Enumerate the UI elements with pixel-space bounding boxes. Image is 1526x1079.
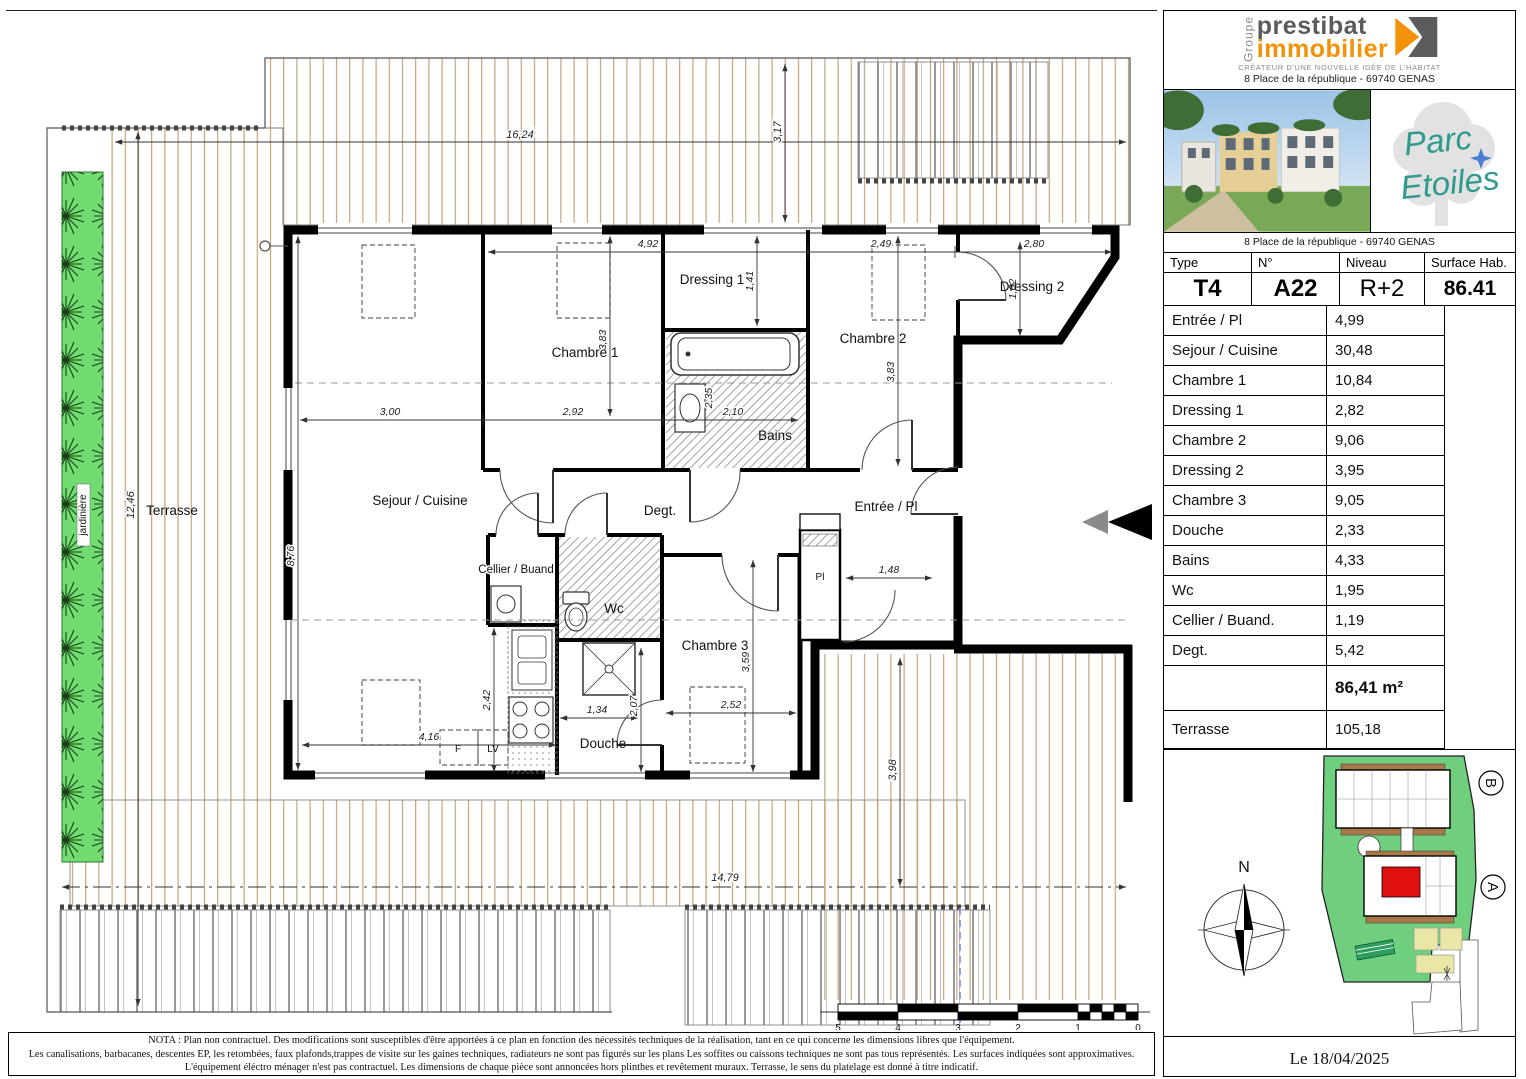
dim-douchew: 1,34	[587, 704, 608, 716]
dim-bottom: 14,79	[711, 872, 739, 884]
dim-sejh: 8,76	[285, 546, 297, 567]
room-row-label: Chambre 1	[1164, 366, 1327, 396]
building-b-label: B	[1482, 778, 1499, 788]
dim-cuish: 2,42	[481, 690, 493, 712]
plan-sheet: jardinière	[0, 0, 1526, 1079]
dim-bainsh: 2,35	[703, 388, 715, 410]
room-row-value: 3,95	[1327, 456, 1445, 486]
surface-value: 86.41	[1425, 273, 1515, 305]
terrace-value: 105,18	[1327, 711, 1445, 749]
room-row-label: Dressing 1	[1164, 396, 1327, 426]
highlighted-unit	[1382, 867, 1420, 897]
terrace-label: Terrasse	[1164, 711, 1327, 749]
dim-c1w: 4,92	[638, 238, 659, 250]
room-row-value: 2,82	[1327, 396, 1445, 426]
nota-disclaimer: NOTA : Plan non contractuel. Des modific…	[8, 1032, 1155, 1076]
dim-entw: 1,48	[879, 564, 900, 576]
unit-header-table: Type N° Niveau Surface Hab. T4 A22 R+2 8…	[1164, 253, 1515, 306]
dim-d2w: 2,80	[1023, 238, 1045, 250]
room-row-label: Entrée / Pl	[1164, 306, 1327, 336]
room-label-cellier: Cellier / Buand	[478, 564, 553, 576]
room-label-bains: Bains	[758, 428, 792, 443]
dim-c3w: 2,52	[720, 699, 742, 711]
dim-bainsw: 2,10	[722, 406, 744, 418]
logo-arrow-icon	[1392, 16, 1438, 58]
info-panel: Groupe prestibat immobilier CRÉATEUR D'U…	[1163, 10, 1516, 1077]
num-label: N°	[1252, 253, 1340, 273]
north-label: N	[1238, 859, 1250, 876]
nota-line3: L'équipement éléctro ménager n'est pas c…	[9, 1061, 1154, 1075]
label-f: F	[455, 744, 461, 755]
room-row-label: Chambre 2	[1164, 426, 1327, 456]
room-label-pl: Pl	[816, 572, 825, 583]
rooms-table-empty-column	[1445, 306, 1515, 749]
room-label-douche: Douche	[580, 736, 627, 751]
total-row-spacer	[1164, 666, 1327, 711]
logo-group-label: Groupe	[1241, 14, 1255, 62]
room-row-value: 1,95	[1327, 576, 1445, 606]
dim-left: 12,46	[125, 490, 137, 518]
parc-text: Parc	[1402, 119, 1474, 163]
scale-tick: 1	[1075, 1023, 1081, 1030]
room-label-chambre3: Chambre 3	[682, 638, 749, 653]
rooms-table: Entrée / Pl4,99 Sejour / Cuisine30,48 Ch…	[1164, 306, 1515, 750]
logo-tagline: CRÉATEUR D'UNE NOUVELLE IDÉE DE L'HABITA…	[1164, 63, 1515, 72]
total-surface: 86,41 m²	[1327, 666, 1445, 711]
room-row-label: Wc	[1164, 576, 1327, 606]
agency-address: 8 Place de la république - 69740 GENAS	[1164, 73, 1515, 85]
type-label: Type	[1164, 253, 1252, 273]
room-row-label: Degt.	[1164, 636, 1327, 666]
level-label: Niveau	[1340, 253, 1425, 273]
room-row-value: 2,33	[1327, 516, 1445, 546]
room-label-wc: Wc	[604, 601, 624, 616]
dim-d1h: 1,41	[744, 271, 756, 291]
dim-sejw: 3,00	[380, 406, 401, 418]
room-row-value: 5,42	[1327, 636, 1445, 666]
dim-c1w2: 2,92	[562, 406, 584, 418]
room-label-dressing2: Dressing 2	[1000, 279, 1065, 294]
dim-right: 3,98	[887, 758, 899, 780]
surface-label: Surface Hab.	[1425, 253, 1515, 273]
room-row-value: 9,05	[1327, 486, 1445, 516]
room-row-label: Cellier / Buand.	[1164, 606, 1327, 636]
agency-logo: Groupe prestibat immobilier CRÉATEUR D'U…	[1164, 11, 1515, 90]
logo-brand-line2: immobilier	[1257, 37, 1388, 62]
room-row-value: 4,99	[1327, 306, 1445, 336]
scale-tick: 0	[1135, 1023, 1141, 1030]
entrance-arrow-icon	[1082, 504, 1152, 540]
site-map: B A	[1322, 756, 1505, 1034]
nota-line2: Les canalisations, barbacanes, descentes…	[9, 1048, 1154, 1062]
type-value: T4	[1164, 273, 1252, 305]
scale-tick: 4	[895, 1023, 901, 1030]
nota-line1: NOTA : Plan non contractuel. Des modific…	[9, 1034, 1154, 1048]
building-a-label: A	[1484, 882, 1501, 892]
dim-cuisw: 4,16	[419, 731, 440, 743]
toilet-icon	[563, 592, 589, 604]
room-label-terrasse: Terrasse	[146, 503, 198, 518]
room-row-label: Sejour / Cuisine	[1164, 336, 1327, 366]
scale-tick: 2	[1015, 1023, 1021, 1030]
floor-plan-svg: jardinière	[0, 0, 1160, 1030]
dim-top: 16,24	[506, 129, 534, 141]
room-label-entree: Entrée / Pl	[854, 499, 917, 514]
room-row-value: 30,48	[1327, 336, 1445, 366]
floor-plan: jardinière	[0, 0, 1160, 1030]
date-box: Le 18/04/2025	[1164, 1037, 1515, 1079]
scale-tick: 5	[835, 1023, 841, 1030]
room-row-label: Dressing 2	[1164, 456, 1327, 486]
scale-bar: 5 4 3 2 1 0	[820, 1004, 1150, 1030]
room-row-value: 4,33	[1327, 546, 1445, 576]
room-label-chambre1: Chambre 1	[552, 345, 619, 360]
room-label-dressing1: Dressing 1	[680, 272, 745, 287]
project-address: 8 Place de la république - 69740 GENAS	[1164, 233, 1515, 253]
room-label-chambre2: Chambre 2	[840, 331, 907, 346]
parc-etoiles-logo: Parc Etoiles	[1370, 90, 1515, 232]
num-value: A22	[1252, 273, 1340, 305]
planter-jardiniere: jardinière	[62, 172, 103, 862]
room-row-label: Douche	[1164, 516, 1327, 546]
room-row-label: Chambre 3	[1164, 486, 1327, 516]
label-lv: LV	[487, 744, 499, 755]
room-label-sejour: Sejour / Cuisine	[372, 493, 467, 508]
site-plan: N	[1164, 750, 1515, 1037]
room-label-degt: Degt.	[644, 503, 676, 518]
room-row-value: 10,84	[1327, 366, 1445, 396]
scale-tick: 3	[955, 1023, 961, 1030]
dim-doucheh: 2,07	[628, 695, 640, 718]
level-value: R+2	[1340, 273, 1425, 305]
building-photo	[1164, 90, 1370, 232]
room-row-value: 9,06	[1327, 426, 1445, 456]
dim-c2h: 3,83	[885, 362, 897, 383]
room-row-label: Bains	[1164, 546, 1327, 576]
dim-c3h: 3,59	[740, 652, 752, 673]
compass-icon: N	[1198, 859, 1290, 976]
dim-top-right: 3,17	[772, 120, 784, 142]
room-row-value: 1,19	[1327, 606, 1445, 636]
jardiniere-label: jardinière	[78, 494, 89, 537]
dim-c2w: 2,49	[870, 238, 892, 250]
